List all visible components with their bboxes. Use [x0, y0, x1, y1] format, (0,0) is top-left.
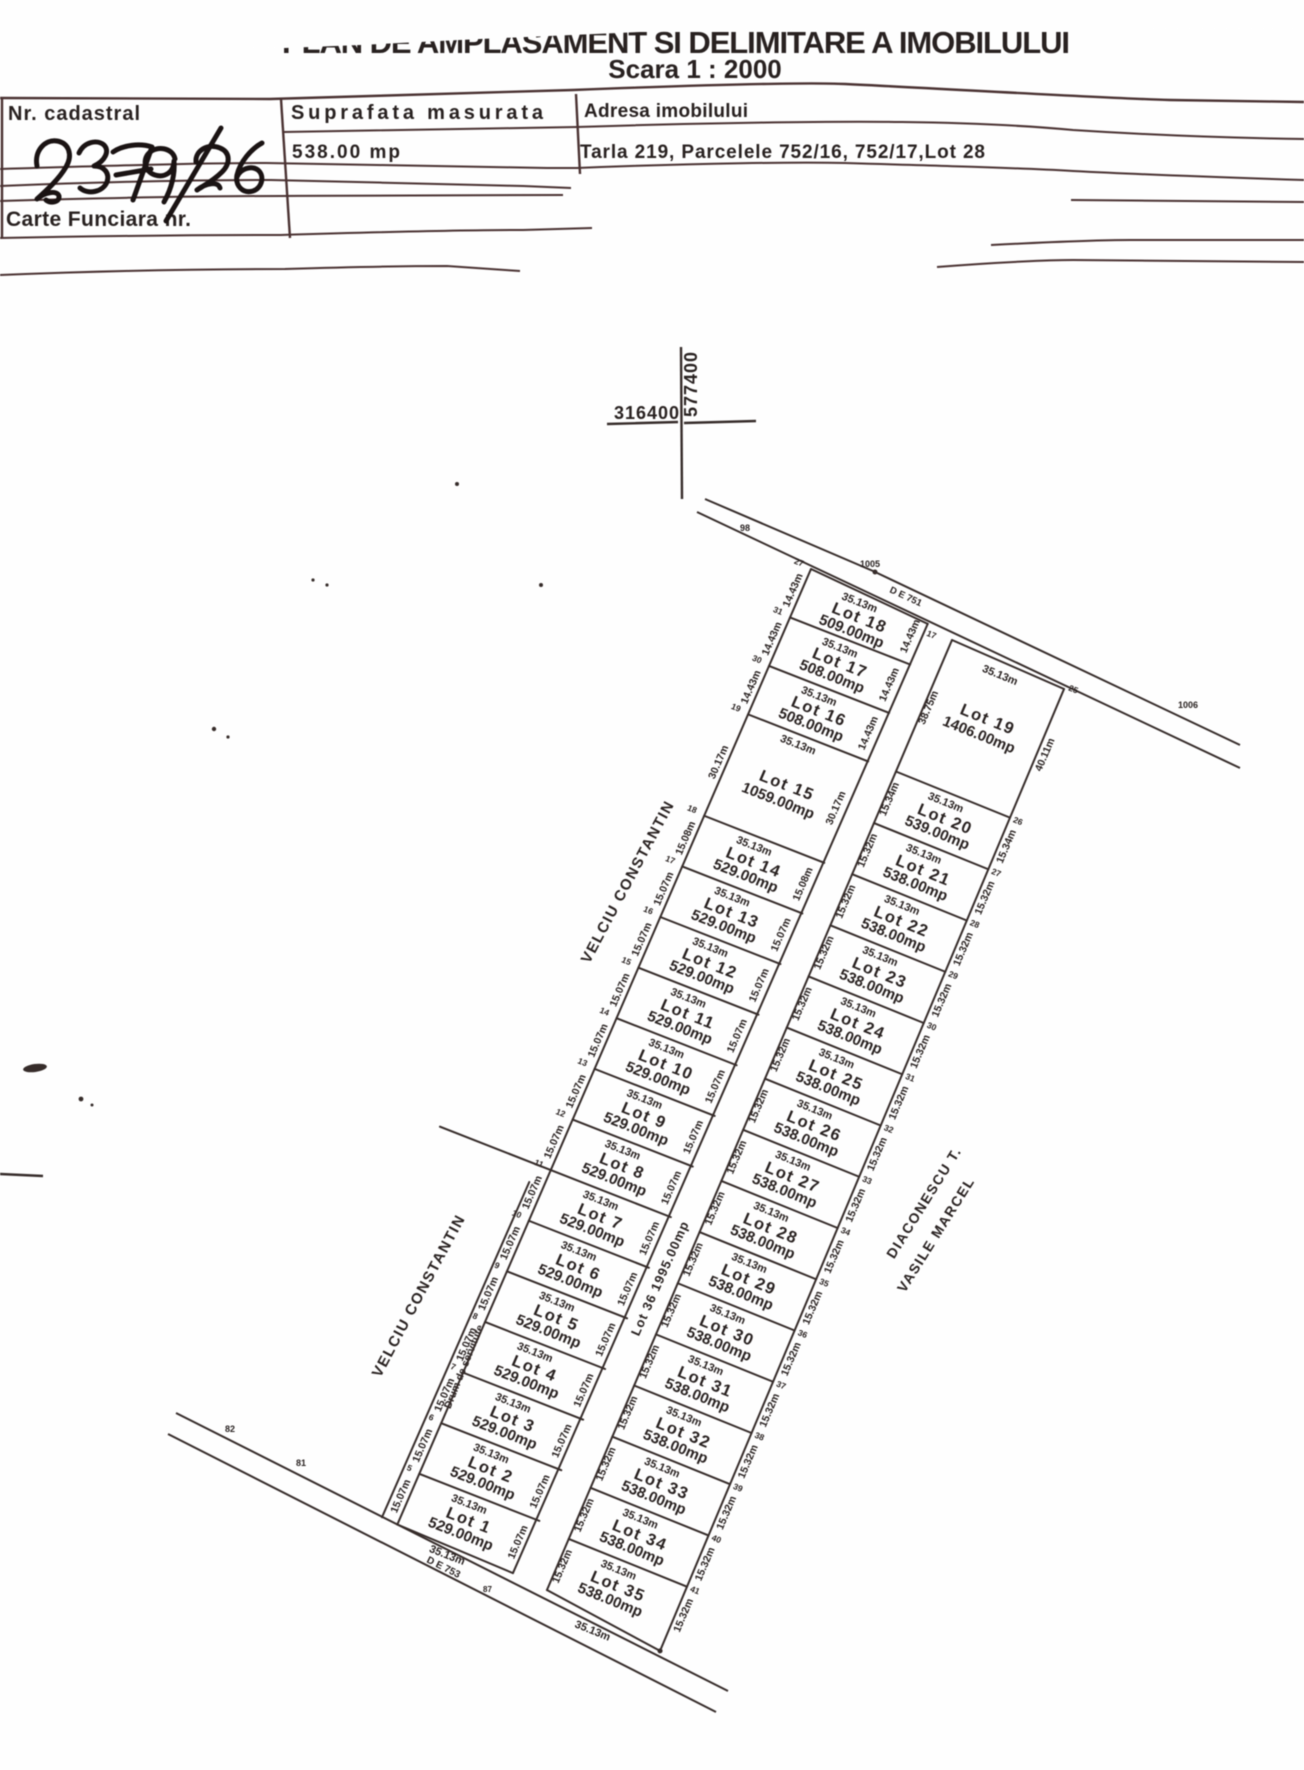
svg-text:31: 31	[904, 1071, 917, 1084]
svg-text:14: 14	[598, 1005, 611, 1018]
svg-text:40: 40	[710, 1532, 723, 1545]
svg-text:Tarla 219, Parcelele 752/16, 7: Tarla 219, Parcelele 752/16, 752/17,Lot …	[580, 142, 985, 163]
svg-text:14.43m: 14.43m	[878, 667, 902, 704]
svg-text:12: 12	[554, 1106, 567, 1119]
svg-text:30: 30	[925, 1020, 938, 1033]
svg-text:17: 17	[664, 853, 677, 866]
svg-text:15: 15	[620, 955, 633, 968]
svg-text:36: 36	[796, 1327, 809, 1340]
svg-text:1005: 1005	[860, 559, 880, 569]
svg-text:15.32m: 15.32m	[594, 1446, 618, 1483]
svg-text:15.32m: 15.32m	[812, 935, 836, 972]
svg-text:316400: 316400	[614, 403, 680, 423]
svg-text:82: 82	[225, 1424, 235, 1434]
svg-text:35.13m: 35.13m	[778, 733, 818, 758]
svg-text:81: 81	[296, 1458, 306, 1468]
svg-text:15.32m: 15.32m	[703, 1190, 727, 1227]
svg-text:15.07m: 15.07m	[769, 917, 793, 954]
svg-text:Scara 1 : 2000: Scara 1 : 2000	[608, 54, 781, 84]
svg-text:1006: 1006	[1178, 700, 1198, 710]
svg-text:39: 39	[732, 1481, 745, 1494]
svg-text:15.32m: 15.32m	[638, 1344, 662, 1381]
svg-text:19: 19	[730, 701, 743, 714]
svg-text:32: 32	[882, 1122, 895, 1135]
svg-text:5: 5	[405, 1462, 414, 1473]
svg-text:15.32m: 15.32m	[834, 883, 858, 920]
svg-text:577400: 577400	[681, 351, 701, 417]
svg-text:15.32m: 15.32m	[769, 1037, 793, 1074]
svg-text:15.32m: 15.32m	[660, 1292, 684, 1329]
svg-text:34: 34	[839, 1225, 852, 1238]
svg-text:15.32m: 15.32m	[747, 1088, 771, 1125]
svg-text:25: 25	[1067, 683, 1080, 696]
svg-text:15.32m: 15.32m	[616, 1395, 640, 1432]
svg-text:15.34m: 15.34m	[878, 781, 902, 818]
svg-text:14.43m: 14.43m	[857, 715, 881, 752]
svg-text:Adresa imobilului: Adresa imobilului	[584, 101, 748, 122]
svg-text:41: 41	[689, 1584, 702, 1597]
svg-text:18: 18	[686, 803, 699, 816]
svg-text:16: 16	[642, 904, 655, 917]
svg-text:15.32m: 15.32m	[573, 1497, 597, 1534]
svg-text:14.43m: 14.43m	[899, 618, 923, 655]
svg-text:98: 98	[740, 523, 750, 533]
svg-text:538.00 mp: 538.00 mp	[292, 142, 400, 163]
svg-text:15.32m: 15.32m	[682, 1241, 706, 1278]
svg-text:15.32m: 15.32m	[725, 1139, 749, 1176]
svg-text:35: 35	[818, 1276, 831, 1289]
svg-text:15.07m: 15.07m	[748, 967, 772, 1004]
svg-text:15.07m: 15.07m	[726, 1018, 750, 1055]
svg-text:15.08m: 15.08m	[791, 866, 815, 903]
svg-text:33: 33	[861, 1174, 874, 1187]
svg-text:D E 751: D E 751	[888, 585, 924, 610]
svg-text:17: 17	[925, 628, 938, 641]
svg-text:Nr. cadastral: Nr. cadastral	[8, 103, 140, 125]
svg-text:27: 27	[990, 866, 1003, 879]
svg-text:31: 31	[772, 604, 785, 617]
svg-text:15.32m: 15.32m	[791, 986, 815, 1023]
svg-text:38: 38	[753, 1430, 766, 1443]
svg-text:Suprafata masurata: Suprafata masurata	[291, 102, 544, 124]
svg-text:Carte Funciara nr.: Carte Funciara nr.	[6, 208, 191, 231]
svg-text:87: 87	[483, 1585, 492, 1594]
svg-text:26: 26	[1012, 815, 1025, 828]
svg-text:29: 29	[947, 969, 960, 982]
svg-text:28: 28	[968, 917, 981, 930]
svg-text:13: 13	[576, 1056, 589, 1069]
svg-text:30.17m: 30.17m	[824, 790, 848, 827]
svg-text:37: 37	[775, 1379, 788, 1392]
svg-text:38.75m: 38.75m	[917, 689, 941, 726]
svg-text:30: 30	[751, 653, 764, 666]
svg-text:15.32m: 15.32m	[551, 1548, 575, 1585]
svg-text:15.32m: 15.32m	[856, 832, 880, 869]
